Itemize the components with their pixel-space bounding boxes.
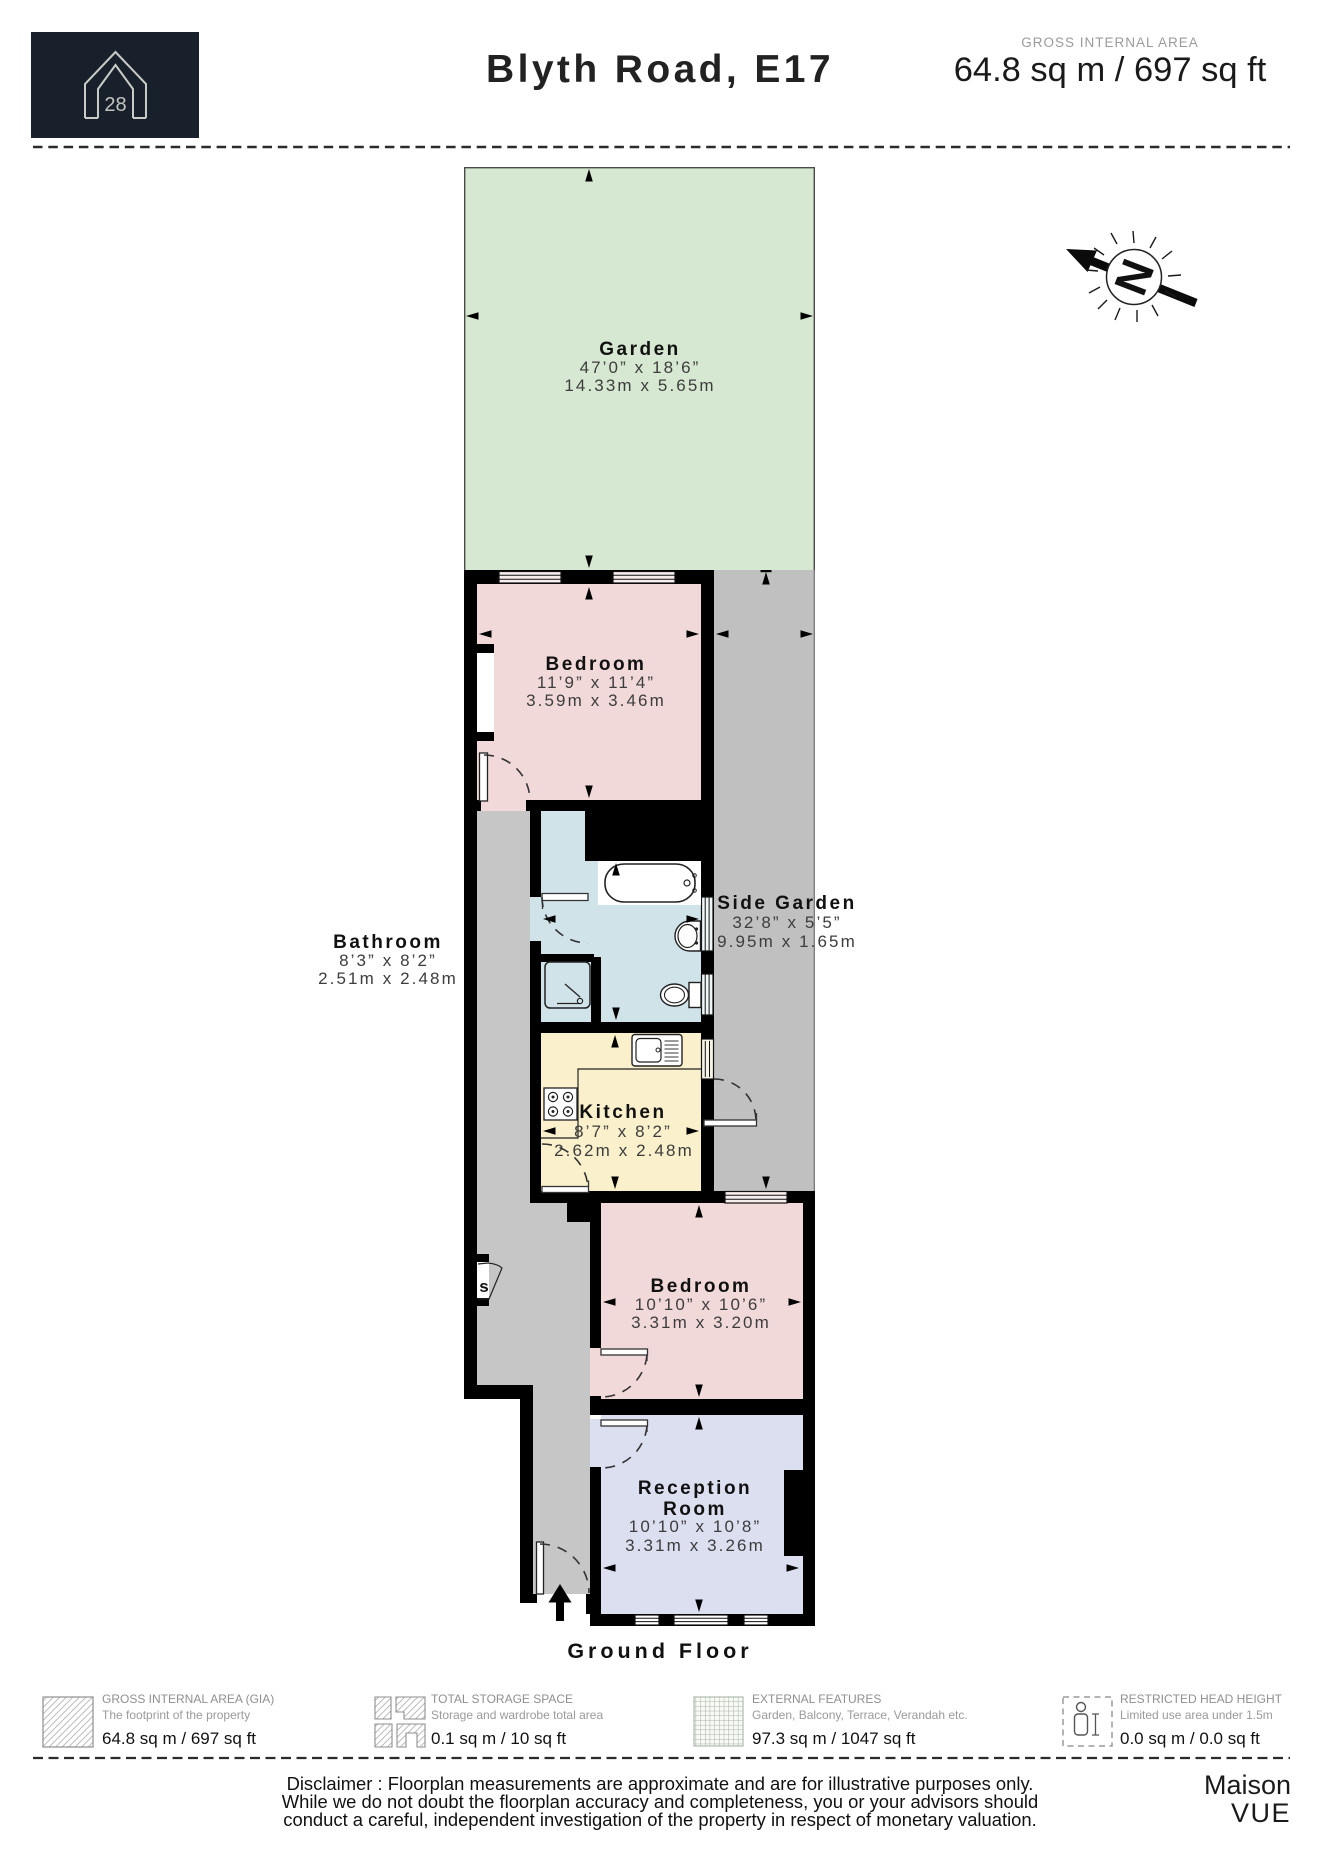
svg-text:97.3 sq m / 1047 sq ft: 97.3 sq m / 1047 sq ft — [752, 1729, 916, 1748]
svg-text:0.0 sq m / 0.0 sq ft: 0.0 sq m / 0.0 sq ft — [1120, 1729, 1260, 1748]
svg-text:10’10” x 10’6”: 10’10” x 10’6” — [635, 1295, 767, 1314]
svg-text:0.1 sq m / 10 sq ft: 0.1 sq m / 10 sq ft — [431, 1729, 566, 1748]
svg-text:VUE: VUE — [1231, 1798, 1291, 1828]
svg-text:Limited use area under 1.5m: Limited use area under 1.5m — [1120, 1708, 1273, 1722]
svg-text:Ground Floor: Ground Floor — [567, 1639, 752, 1663]
svg-text:Storage and wardrobe total are: Storage and wardrobe total area — [431, 1708, 603, 1722]
svg-text:Bedroom: Bedroom — [651, 1276, 752, 1297]
svg-text:8’3” x 8’2”: 8’3” x 8’2” — [339, 951, 437, 970]
svg-text:64.8 sq m / 697 sq ft: 64.8 sq m / 697 sq ft — [102, 1729, 256, 1748]
svg-text:EXTERNAL FEATURES: EXTERNAL FEATURES — [752, 1692, 881, 1706]
svg-text:Maison: Maison — [1204, 1770, 1291, 1800]
svg-text:Kitchen: Kitchen — [579, 1102, 666, 1123]
svg-text:GROSS INTERNAL AREA (GIA): GROSS INTERNAL AREA (GIA) — [102, 1692, 274, 1706]
svg-text:GROSS INTERNAL AREA: GROSS INTERNAL AREA — [1021, 35, 1199, 50]
svg-text:28: 28 — [104, 94, 126, 116]
svg-text:Garden: Garden — [599, 339, 681, 360]
svg-text:11’9” x 11’4”: 11’9” x 11’4” — [537, 673, 655, 692]
svg-text:9.95m x 1.65m: 9.95m x 1.65m — [717, 932, 857, 951]
svg-text:32’8” x 5’5”: 32’8” x 5’5” — [732, 913, 841, 932]
svg-text:2.62m x 2.48m: 2.62m x 2.48m — [554, 1141, 694, 1160]
svg-text:s: s — [479, 1277, 488, 1296]
svg-text:3.31m x 3.20m: 3.31m x 3.20m — [631, 1313, 771, 1332]
svg-text:Side Garden: Side Garden — [717, 893, 856, 914]
svg-text:The footprint of the property: The footprint of the property — [102, 1708, 250, 1722]
svg-text:Reception: Reception — [638, 1478, 752, 1499]
svg-text:8’7” x 8’2”: 8’7” x 8’2” — [574, 1122, 672, 1141]
svg-text:10’10” x 10’8”: 10’10” x 10’8” — [629, 1517, 761, 1536]
svg-text:3.31m x 3.26m: 3.31m x 3.26m — [625, 1536, 765, 1555]
svg-text:64.8 sq m / 697 sq ft: 64.8 sq m / 697 sq ft — [954, 51, 1267, 89]
svg-text:Blyth Road, E17: Blyth Road, E17 — [486, 48, 834, 91]
svg-text:14.33m x 5.65m: 14.33m x 5.65m — [564, 376, 715, 395]
svg-text:47’0” x 18’6”: 47’0” x 18’6” — [580, 358, 701, 377]
svg-text:TOTAL STORAGE SPACE: TOTAL STORAGE SPACE — [431, 1692, 573, 1706]
svg-text:Bathroom: Bathroom — [333, 932, 443, 953]
svg-text:Bedroom: Bedroom — [546, 654, 647, 675]
svg-text:RESTRICTED HEAD HEIGHT: RESTRICTED HEAD HEIGHT — [1120, 1692, 1283, 1706]
svg-text:Garden, Balcony, Terrace, Vera: Garden, Balcony, Terrace, Verandah etc. — [752, 1708, 968, 1722]
svg-text:2.51m x 2.48m: 2.51m x 2.48m — [318, 969, 458, 988]
svg-text:3.59m x 3.46m: 3.59m x 3.46m — [526, 691, 666, 710]
svg-text:conduct a careful, independent: conduct a careful, independent investiga… — [283, 1809, 1036, 1830]
